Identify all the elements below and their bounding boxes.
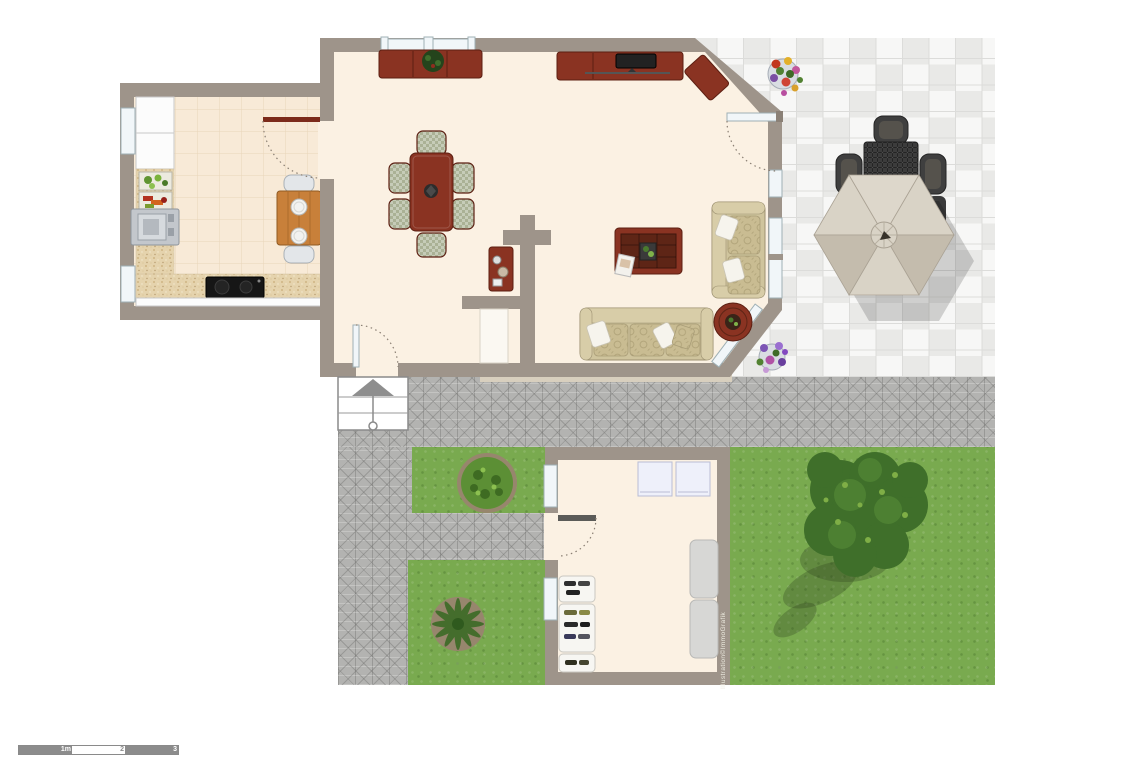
patio-table [864,142,918,178]
garden-tree [768,452,928,644]
entrance-door-leaf [353,325,359,367]
kitchen-door-leaf [263,117,320,122]
coffee-table [615,228,682,277]
hall-niche [480,309,508,363]
kitchen-chair-bottom [284,246,314,263]
sofa-arm [701,308,713,360]
two-seat-sofa [712,202,765,298]
scale-segment-2: 2 [72,746,125,754]
stove [131,209,179,245]
dining-chair [452,199,474,229]
scale-label-2: 2 [120,746,124,754]
patio-door-hinge [776,111,783,122]
cutting-board-vegetables [139,192,172,211]
console-table [489,247,513,291]
scale-label-1m: 1m [61,746,71,754]
shed-doorway [544,513,558,560]
scale-segment-3: 3 [125,746,178,754]
partition-wall-horizontal [462,296,522,309]
flower-pot-north [768,57,803,96]
window-divider [768,254,783,260]
shoe-shelves [559,576,595,672]
patio-umbrella [814,175,974,321]
round-side-table [714,303,752,341]
entrance-stairs [338,377,408,430]
scale-bar: 1m 2 3 [18,745,179,755]
kitchen-window-lower [121,266,135,302]
lounger [690,600,718,658]
shed-door-leaf [558,515,596,521]
sideboard [379,50,482,78]
plate [291,228,307,244]
garden-shed [544,447,730,685]
round-bush [457,453,517,513]
kitchen-window-upper [121,108,135,154]
dining-chair [452,163,474,193]
patio-door-leaf [727,113,777,121]
kitchen-doorway [318,121,336,179]
potted-plant [422,50,444,72]
dining-chair [389,199,411,229]
floor-plan-graphics [0,0,1123,766]
watermark-text: Illustration©ImmoGrafik [720,612,727,689]
east-window-small [769,170,782,197]
cutting-board-greens [139,172,172,190]
tv [616,54,656,68]
magazine [615,254,635,277]
kitchen-cabinet-bottom [136,298,321,306]
entrance-doorway [356,363,398,377]
dining-chair [389,163,411,193]
lounger [690,540,718,598]
flower-pot-south [757,342,789,373]
dining-chair [417,131,446,155]
sofa-arm [712,202,765,214]
shed-window-upper [544,465,557,507]
partition-wall-stub [503,230,551,245]
dining-chair [417,233,446,257]
planter [640,243,656,260]
storage-box [676,462,710,496]
kitchen-chair-top [284,175,314,192]
three-seat-sofa [580,308,713,360]
cooktop-sink [206,277,264,298]
living-dining-room [263,37,783,377]
sofa-back [580,308,713,323]
shed-window-lower [544,578,557,620]
storage-box [638,462,672,496]
scale-label-3: 3 [173,746,177,754]
grass-plant [431,597,485,651]
floor-plan-canvas: Illustration©ImmoGrafik 1m 2 3 [0,0,1123,766]
plate [291,199,307,215]
scale-segment-1: 1m [19,746,72,754]
